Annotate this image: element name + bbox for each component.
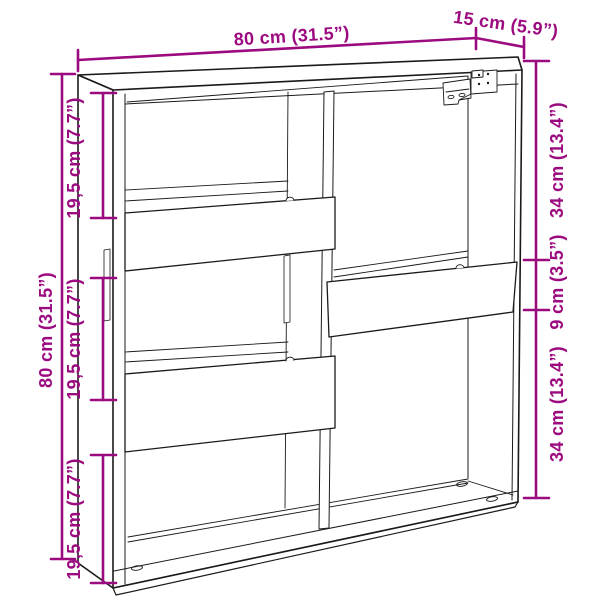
front-bottom-edge xyxy=(113,502,518,588)
dim-left-total-label: 80 cm (31.5”) xyxy=(36,272,56,388)
shelf-right xyxy=(327,262,517,337)
shelf-cleat-divider xyxy=(284,255,290,323)
front-right-edge xyxy=(518,70,522,502)
shelf-left-lower xyxy=(125,356,335,452)
floor-front-edge xyxy=(114,491,518,571)
bottom-underside xyxy=(113,502,518,595)
screw-hole xyxy=(131,565,143,571)
dim-left-compartment-1-label: 19,5 cm (7.7”) xyxy=(64,97,84,218)
wall-cabinet-dimension-diagram: 80 cm (31.5”) 15 cm (5.9”) 80 cm (31.5”)… xyxy=(0,0,600,600)
dim-right-top-label: 34 cm (13.4”) xyxy=(547,102,567,218)
shelf-cleat-left xyxy=(104,249,110,321)
cabinet-drawing xyxy=(78,57,522,595)
dim-right-middle-label: 9 cm (3.5”) xyxy=(547,234,567,329)
dim-top-depth-label: 15 cm (5.9”) xyxy=(452,7,559,42)
diagram-canvas: 80 cm (31.5”) 15 cm (5.9”) 80 cm (31.5”)… xyxy=(0,0,600,600)
wall-bracket-left xyxy=(443,79,471,105)
dim-left-compartment-2-label: 19,5 cm (7.7”) xyxy=(64,278,84,399)
dim-left-compartment-3-label: 19,5 cm (7.7”) xyxy=(64,458,84,579)
screw-holes xyxy=(131,481,498,571)
dim-line-right xyxy=(524,61,549,498)
shelf-left-upper xyxy=(125,197,335,271)
floor-back-rail-lower xyxy=(128,483,468,542)
dim-right-bottom-label: 34 cm (13.4”) xyxy=(547,346,567,462)
